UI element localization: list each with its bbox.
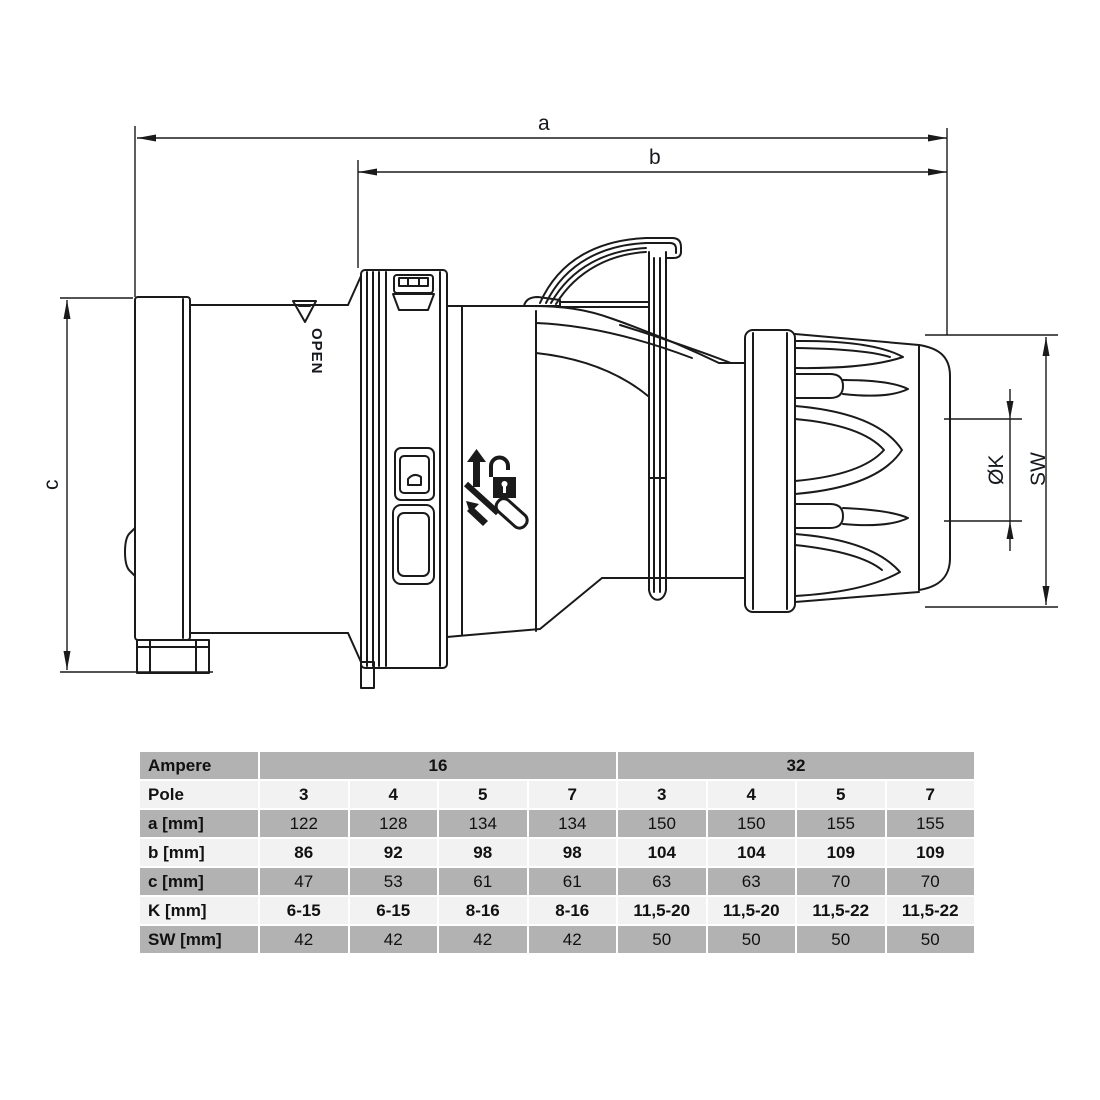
table-value-cell: 61 [439, 868, 527, 895]
table-value-cell: 150 [618, 810, 706, 837]
table-value-cell: 50 [797, 926, 885, 953]
table-value-cell: 47 [260, 868, 348, 895]
table-value-cell: 6-15 [350, 897, 438, 924]
table-value-cell: 42 [350, 926, 438, 953]
dim-label-b: b [649, 146, 661, 169]
table-value-cell: 50 [708, 926, 796, 953]
table-value-cell: 8-16 [439, 897, 527, 924]
table-value-cell: 134 [439, 810, 527, 837]
table-value-cell: 5 [439, 781, 527, 808]
table-value-cell: 50 [618, 926, 706, 953]
table-value-cell: 6-15 [260, 897, 348, 924]
page: a b c ØK SW [0, 0, 1100, 1100]
latch-lower [393, 505, 434, 584]
table-ampere-group: 32 [618, 752, 974, 779]
table-value-cell: 104 [708, 839, 796, 866]
table-value-cell: 98 [529, 839, 617, 866]
plug-front-rim [125, 297, 209, 673]
dimension-arrowheads [64, 135, 1050, 671]
dimension-lines [60, 126, 1058, 672]
gland-crown [795, 334, 950, 602]
dim-label-c: c [40, 480, 63, 491]
table-value-cell: 50 [887, 926, 975, 953]
dim-label-a: a [538, 112, 550, 135]
gland-flange [745, 330, 795, 612]
dim-label-sw: SW [1027, 452, 1050, 486]
table-rowlabel: a [mm] [140, 810, 258, 837]
table-value-cell: 155 [887, 810, 975, 837]
open-padlock-icon [491, 458, 516, 499]
table-value-cell: 150 [708, 810, 796, 837]
latch-upper [395, 448, 434, 500]
table-value-cell: 109 [797, 839, 885, 866]
table-value-cell: 42 [529, 926, 617, 953]
table-rowlabel: b [mm] [140, 839, 258, 866]
table-value-cell: 7 [887, 781, 975, 808]
table-value-cell: 11,5-22 [887, 897, 975, 924]
plug-outline [125, 238, 950, 688]
table-value-cell: 128 [350, 810, 438, 837]
table-value-cell: 8-16 [529, 897, 617, 924]
table-value-cell: 155 [797, 810, 885, 837]
up-arrow-icon [467, 449, 486, 487]
table-value-cell: 86 [260, 839, 348, 866]
unlock-pictograms [466, 449, 530, 531]
table-rowlabel: c [mm] [140, 868, 258, 895]
table-value-cell: 70 [797, 868, 885, 895]
table-value-cell: 42 [260, 926, 348, 953]
table-value-cell: 92 [350, 839, 438, 866]
table-value-cell: 7 [529, 781, 617, 808]
table-value-cell: 53 [350, 868, 438, 895]
table-value-cell: 104 [618, 839, 706, 866]
table-value-cell: 70 [887, 868, 975, 895]
table-value-cell: 11,5-20 [618, 897, 706, 924]
table-value-cell: 4 [350, 781, 438, 808]
locking-ring [361, 270, 447, 688]
plug-sleeve [190, 276, 361, 662]
table-value-cell: 134 [529, 810, 617, 837]
table-value-cell: 98 [439, 839, 527, 866]
table-rowlabel-ampere: Ampere [140, 752, 258, 779]
open-label: OPEN [308, 328, 325, 375]
table-value-cell: 42 [439, 926, 527, 953]
table-value-cell: 3 [260, 781, 348, 808]
dimension-table: Ampere1632Pole34573457a [mm]122128134134… [140, 752, 974, 953]
table-value-cell: 11,5-22 [797, 897, 885, 924]
table-value-cell: 61 [529, 868, 617, 895]
table-ampere-group: 16 [260, 752, 616, 779]
table-rowlabel: K [mm] [140, 897, 258, 924]
table-value-cell: 5 [797, 781, 885, 808]
table-value-cell: 11,5-20 [708, 897, 796, 924]
dim-label-k: ØK [985, 455, 1008, 485]
table-value-cell: 109 [887, 839, 975, 866]
table-value-cell: 63 [708, 868, 796, 895]
carry-handle [524, 238, 681, 600]
table-rowlabel: SW [mm] [140, 926, 258, 953]
table-value-cell: 122 [260, 810, 348, 837]
table-value-cell: 63 [618, 868, 706, 895]
table-value-cell: 3 [618, 781, 706, 808]
table-value-cell: 4 [708, 781, 796, 808]
table-rowlabel: Pole [140, 781, 258, 808]
